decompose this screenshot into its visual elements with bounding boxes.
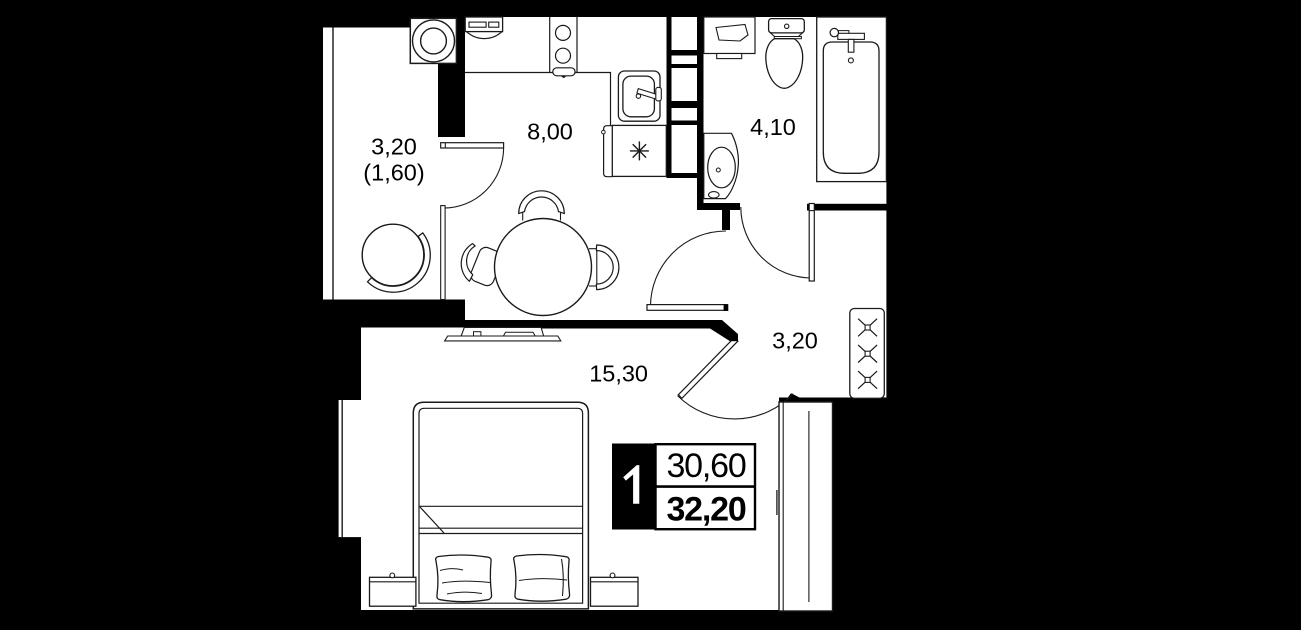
svg-text:4,10: 4,10 [750, 114, 796, 140]
svg-text:(1,60): (1,60) [363, 160, 424, 186]
svg-text:30,60: 30,60 [666, 447, 745, 485]
svg-text:8,00: 8,00 [527, 119, 573, 145]
svg-text:3,20: 3,20 [371, 134, 417, 160]
svg-text:15,30: 15,30 [589, 360, 648, 386]
svg-text:32,20: 32,20 [666, 491, 745, 529]
svg-text:3,20: 3,20 [772, 327, 818, 353]
